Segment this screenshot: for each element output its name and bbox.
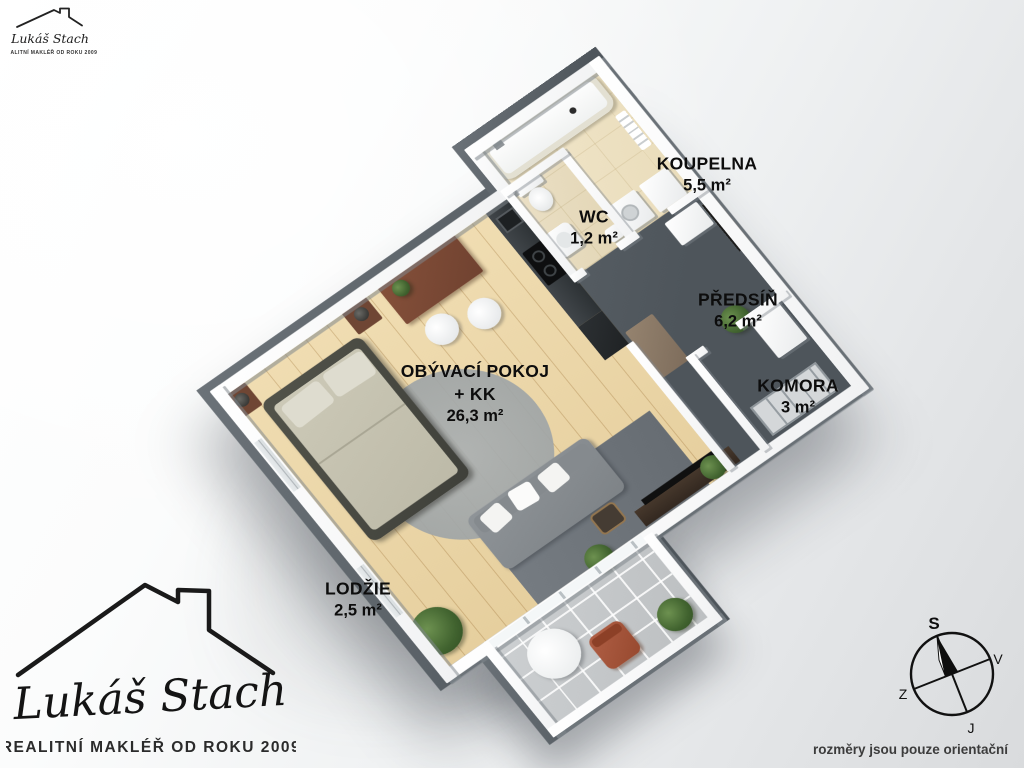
agent-logo-large: Lukáš Stach REALITNÍ MAKLÉŘ OD ROKU 2009 — [6, 572, 296, 768]
agent-tagline: REALITNÍ MAKLÉŘ OD ROKU 2009 — [6, 738, 296, 756]
compass-west: Z — [899, 686, 908, 702]
compass-east: V — [993, 651, 1003, 667]
compass-south: J — [968, 720, 975, 736]
floorplan-render: KOUPELNA 5,5 m² WC 1,2 m² PŘEDSÍŇ 6,2 m²… — [0, 0, 1024, 768]
house-roof-icon — [18, 585, 273, 675]
house-roof-icon — [17, 9, 82, 28]
disclaimer-text: rozměry jsou pouze orientační — [813, 742, 1008, 757]
agent-logo-small: Lukáš Stach REALITNÍ MAKLÉŘ OD ROKU 2009 — [10, 4, 130, 68]
compass-north: S — [928, 614, 939, 633]
agent-name-script: Lukáš Stach — [11, 665, 288, 730]
agent-tagline: REALITNÍ MAKLÉŘ OD ROKU 2009 — [10, 48, 97, 56]
compass-icon: S V Z J — [890, 598, 1014, 748]
agent-name-script: Lukáš Stach — [10, 31, 89, 46]
